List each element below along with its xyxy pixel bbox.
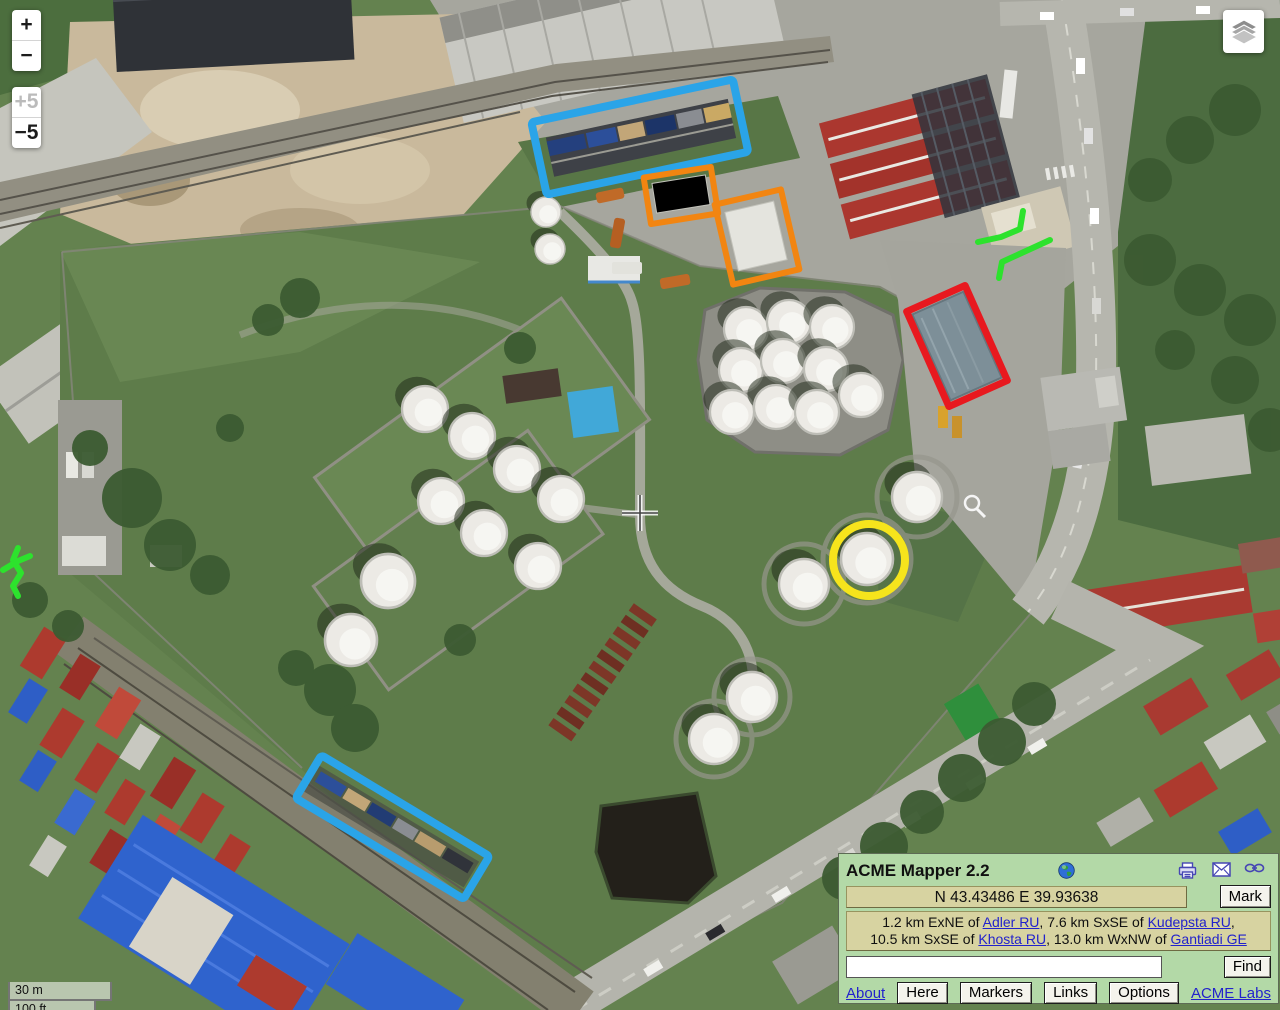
- links-button[interactable]: Links: [1044, 982, 1097, 1004]
- location-text: 1.2 km ExNE of: [882, 914, 982, 930]
- scale-control: 30 m 100 ft: [8, 982, 112, 1010]
- link-adler[interactable]: Adler RU: [983, 914, 1040, 930]
- print-icon[interactable]: [1178, 862, 1197, 879]
- zoom-out-button[interactable]: −: [12, 41, 41, 71]
- zoom-in-button[interactable]: +: [12, 10, 41, 41]
- globe-icon: [1058, 862, 1075, 879]
- location-description: 1.2 km ExNE of Adler RU, 7.6 km SxSE of …: [846, 911, 1271, 951]
- options-button[interactable]: Options: [1109, 982, 1179, 1004]
- email-icon[interactable]: [1212, 862, 1231, 877]
- layers-icon: [1230, 19, 1258, 45]
- here-button[interactable]: Here: [897, 982, 948, 1004]
- coordinates-display[interactable]: N 43.43486 E 39.93638: [846, 886, 1187, 908]
- pond: [596, 793, 716, 903]
- find-button[interactable]: Find: [1224, 956, 1271, 978]
- link-icon[interactable]: [1244, 862, 1265, 874]
- about-link[interactable]: About: [846, 985, 885, 1002]
- acme-labs-link[interactable]: ACME Labs: [1191, 985, 1271, 1002]
- search-row: Find: [846, 956, 1271, 978]
- zoom-step5-control: +5 −5: [12, 87, 41, 148]
- coordinate-row: N 43.43486 E 39.93638 Mark: [846, 885, 1271, 908]
- zoom-in-5-button[interactable]: +5: [12, 87, 41, 118]
- link-kudepsta[interactable]: Kudepsta RU: [1148, 914, 1231, 930]
- map-application: + − +5 −5 30 m 100 ft ACME Mapper 2.2: [0, 0, 1280, 1010]
- link-khosta[interactable]: Khosta RU: [978, 931, 1046, 947]
- panel-header: ACME Mapper 2.2: [846, 859, 1271, 885]
- scale-imperial: 100 ft: [8, 1001, 96, 1010]
- panel-title: ACME Mapper 2.2: [846, 861, 990, 880]
- acme-mapper-panel: ACME Mapper 2.2: [838, 853, 1279, 1004]
- scale-metric: 30 m: [8, 982, 112, 1001]
- zoom-out-5-button[interactable]: −5: [12, 118, 41, 148]
- layers-button[interactable]: [1223, 10, 1264, 53]
- link-gantiadi[interactable]: Gantiadi GE: [1171, 931, 1247, 947]
- markers-button[interactable]: Markers: [960, 982, 1032, 1004]
- panel-footer: About Here Markers Links Options ACME La…: [846, 982, 1271, 1004]
- search-input[interactable]: [846, 956, 1162, 978]
- mark-button[interactable]: Mark: [1220, 885, 1271, 908]
- zoom-control: + −: [12, 10, 41, 71]
